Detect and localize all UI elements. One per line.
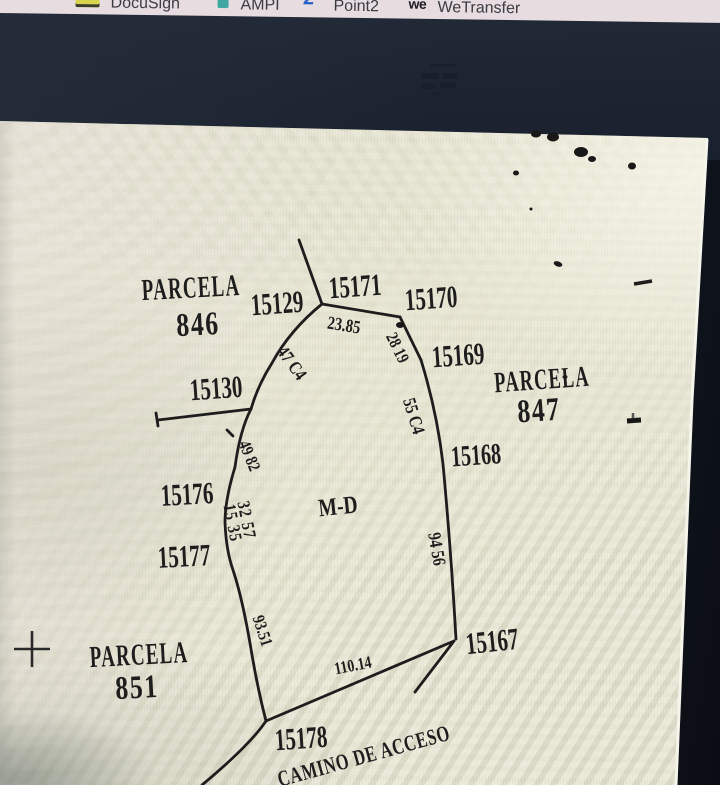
svg-text:15178: 15178 <box>273 719 328 758</box>
svg-text:93.51: 93.51 <box>248 613 276 649</box>
svg-text:15168: 15168 <box>450 439 502 474</box>
svg-text:15170: 15170 <box>403 279 458 318</box>
svg-text:23.85: 23.85 <box>326 312 362 338</box>
svg-text:49 82: 49 82 <box>234 438 263 474</box>
svg-text:15176: 15176 <box>160 475 214 513</box>
svg-text:15129: 15129 <box>249 284 304 323</box>
svg-text:847: 847 <box>516 392 562 431</box>
svg-text:110.14: 110.14 <box>333 653 373 679</box>
svg-text:15171: 15171 <box>327 267 382 306</box>
svg-text:M-D: M-D <box>317 490 359 522</box>
svg-text:851: 851 <box>114 669 159 707</box>
svg-text:15130: 15130 <box>188 369 243 408</box>
svg-text:47 C4: 47 C4 <box>273 342 312 384</box>
svg-text:15167: 15167 <box>464 621 520 661</box>
svg-text:PARCELA: PARCELA <box>141 269 241 308</box>
svg-text:94 56: 94 56 <box>424 531 450 567</box>
svg-text:846: 846 <box>175 306 220 344</box>
svg-text:PARCELA: PARCELA <box>89 636 189 675</box>
svg-text:15169: 15169 <box>430 336 485 375</box>
svg-text:55 C4: 55 C4 <box>399 395 430 437</box>
svg-text:15177: 15177 <box>157 537 211 575</box>
